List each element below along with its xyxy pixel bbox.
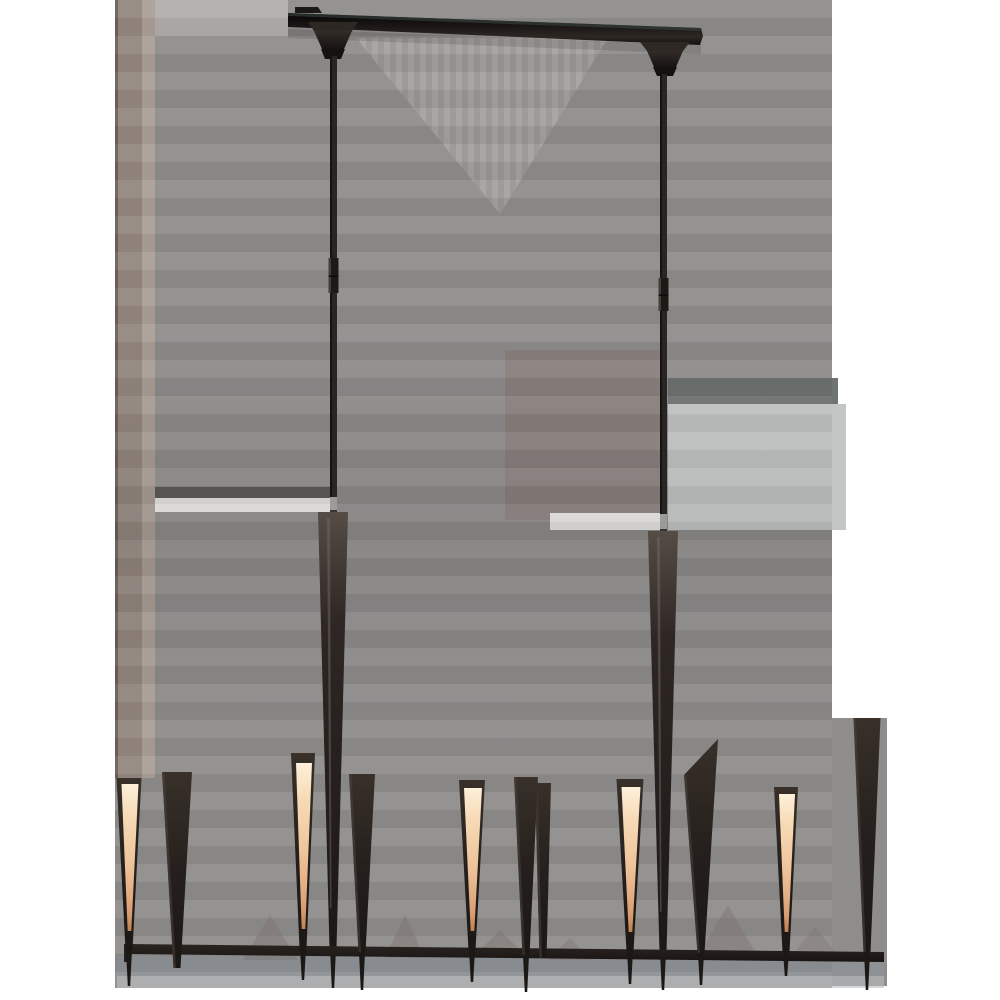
downrod-left xyxy=(329,56,339,516)
background-artifact-patches xyxy=(115,0,887,988)
downrod-right xyxy=(659,74,669,535)
product-image xyxy=(0,0,1000,1000)
chandelier-scene xyxy=(0,0,1000,1000)
